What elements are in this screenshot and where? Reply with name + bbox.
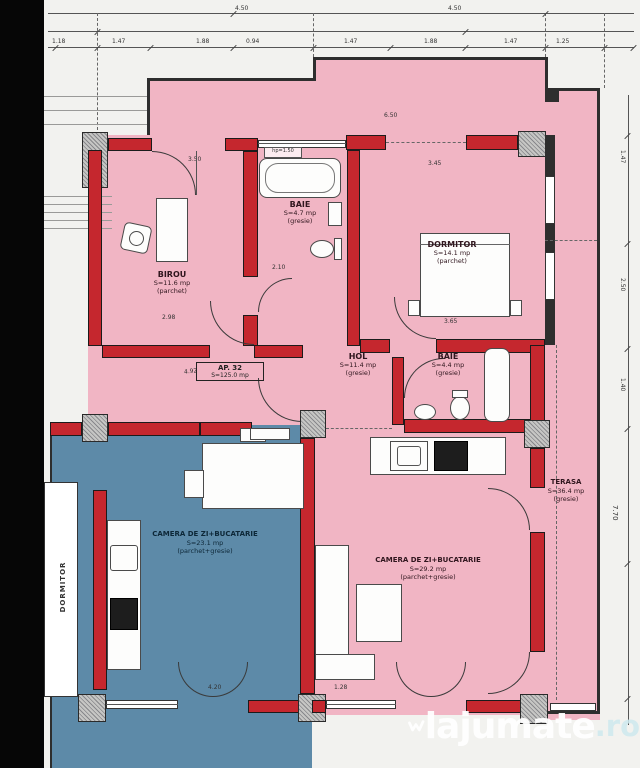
dimension-label: 6.50 [384,112,397,119]
wall [88,150,102,346]
dimension-label: 4.50 [448,5,461,12]
sink [328,202,342,226]
cabinet [250,428,290,440]
apartment-fill [147,78,313,135]
room-label-living-vecin: CAMERA DE ZI+BUCATARIE S=23.1 mp (parche… [120,530,290,555]
stove [434,441,468,471]
wall [466,135,518,150]
dining-table [202,443,304,509]
room-label-dormitor: DORMITOR S=14.1 mp (parchet) [414,240,490,265]
room-label-terasa: TERASA S=36.4 mp (gresie) [540,478,592,503]
wall [50,422,82,436]
wall [312,700,326,713]
toilet-tank [452,390,468,398]
neighbor-line [44,110,147,111]
column [82,414,108,442]
wall [248,700,300,713]
nightstand [510,300,522,316]
toilet-tank [334,238,342,260]
neighbor-line [44,96,147,97]
wall [392,357,404,425]
wall [530,532,545,652]
exterior-wall [597,88,600,714]
neighbor-room-label: DORMITOR [44,482,78,697]
room-label-baie1: BAIE S=4.7 mp (gresie) [272,200,328,225]
wall [108,138,152,151]
dimension-label: 2.98 [162,314,175,321]
zone-dashed-line [326,428,392,429]
sofa [315,545,349,657]
exterior-wall [147,78,316,81]
wall [347,150,360,346]
column [545,88,559,102]
window-line [326,704,396,705]
wall [346,135,386,150]
kitchen-sink-basin [397,446,421,466]
tick-mark [387,45,393,51]
stove [110,598,138,630]
dimension-label: 1.88 [196,38,209,45]
wall [243,151,258,277]
dimension-label: 1.40 [619,378,626,391]
parapet-note: hp=1.50 [264,147,302,158]
apartment-title-box: AP. 32 S=125.0 mp [196,362,264,381]
dimension-label: 1.47 [344,38,357,45]
window-line [106,704,178,705]
room-label-hol: HOL S=11.4 mp (gresie) [330,352,386,377]
wall [530,345,545,425]
desk [156,198,188,262]
dimension-line [628,95,629,725]
office-chair-seat [129,231,144,246]
tick-mark [630,45,636,51]
floor-plan: 4.50 4.50 1.18 1.47 1.88 0.94 1.47 1.88 … [0,0,640,768]
room-label-living: CAMERA DE ZI+BUCATARIE S=29.2 mp (parche… [352,556,504,581]
room-label-baie2: BAIE S=4.4 mp (gresie) [420,352,476,377]
dimension-label: 1.18 [52,38,65,45]
exterior-wall [545,57,548,91]
sink [414,404,436,420]
dimension-label: 4.50 [235,5,248,12]
opening-line [386,142,466,143]
tick-mark [52,45,58,51]
wall [404,419,530,433]
tick-mark [147,45,153,51]
wall [225,138,258,151]
wall [254,345,303,358]
projection-line [313,13,314,57]
column [78,694,106,722]
tick-mark [462,45,468,51]
window-line [258,143,346,144]
exterior-wall [313,57,545,60]
dimension-label: 1.47 [619,150,626,163]
nightstand [408,300,420,316]
scan-black-strip [0,0,44,768]
watermark-brand-text: lajumate [425,706,595,747]
column [518,131,546,157]
wall [360,339,390,353]
dimension-label: 1.47 [112,38,125,45]
dimension-label: 1.47 [504,38,517,45]
door-leaf [196,151,197,195]
window [545,176,555,224]
column [524,420,550,448]
projection-line [545,13,546,57]
dimension-line [48,31,634,32]
neighbor-room-name: DORMITOR [59,507,67,667]
column [300,410,326,438]
tick-mark [462,29,468,35]
dimension-label: 7.70 [611,505,618,521]
terrace-dashed-line [556,345,557,700]
room-label-birou: BIROU S=11.6 mp (parchet) [132,270,212,295]
window [545,252,555,300]
dimension-label: 1.25 [556,38,569,45]
watermark-logo-icon [408,695,425,757]
dimension-label: 0.94 [246,38,259,45]
toilet [450,396,470,420]
dimension-label: 3.45 [428,160,441,167]
bathtub-inner [265,163,335,193]
dimension-label: 3.50 [188,156,201,163]
wall [102,345,210,358]
wall [108,422,200,436]
projection-line [604,13,605,88]
exterior-wall [313,57,316,81]
neighbor-line [44,124,147,125]
dimension-label: 3.65 [444,318,457,325]
dimension-label: 2.50 [619,278,626,291]
bathtub [484,348,510,422]
dimension-label: 2.10 [272,264,285,271]
chair [184,470,204,498]
toilet [310,240,334,258]
terrace-dashed-line [545,240,597,241]
sofa [315,654,375,680]
coffee-table [356,584,402,642]
watermark: lajumate.ro [408,688,640,764]
dimension-label: 1.28 [334,684,347,691]
wall [93,490,107,690]
exterior-wall [147,78,150,135]
tick-mark [230,45,236,51]
watermark-tld-text: .ro [595,709,640,743]
dimension-label: 1.88 [424,38,437,45]
apartment-fill [313,57,545,135]
